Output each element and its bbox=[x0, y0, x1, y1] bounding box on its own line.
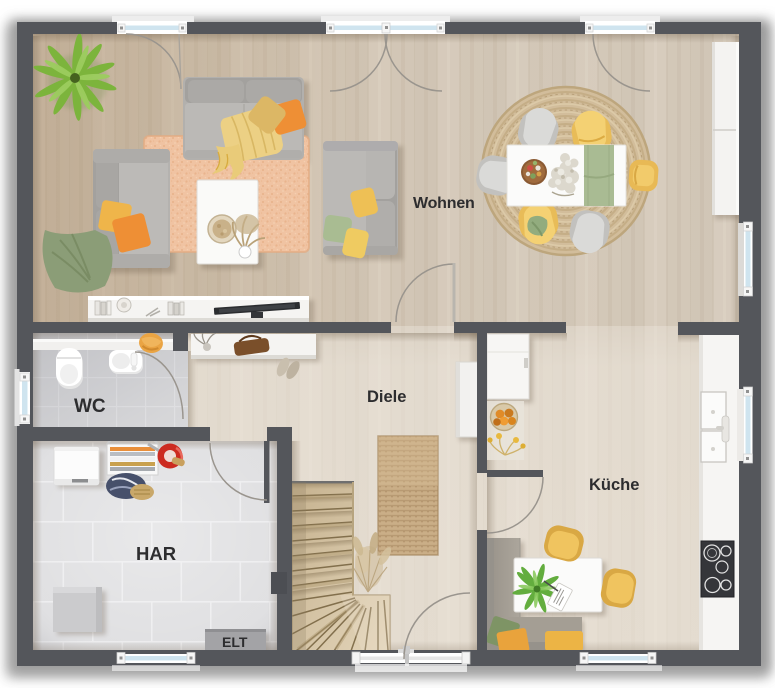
svg-text:Küche: Küche bbox=[589, 476, 639, 494]
svg-text:HAR: HAR bbox=[136, 543, 176, 564]
svg-text:Diele: Diele bbox=[367, 388, 406, 406]
svg-text:Wohnen: Wohnen bbox=[413, 195, 475, 212]
svg-text:WC: WC bbox=[74, 396, 106, 417]
svg-text:ELT: ELT bbox=[222, 634, 248, 650]
